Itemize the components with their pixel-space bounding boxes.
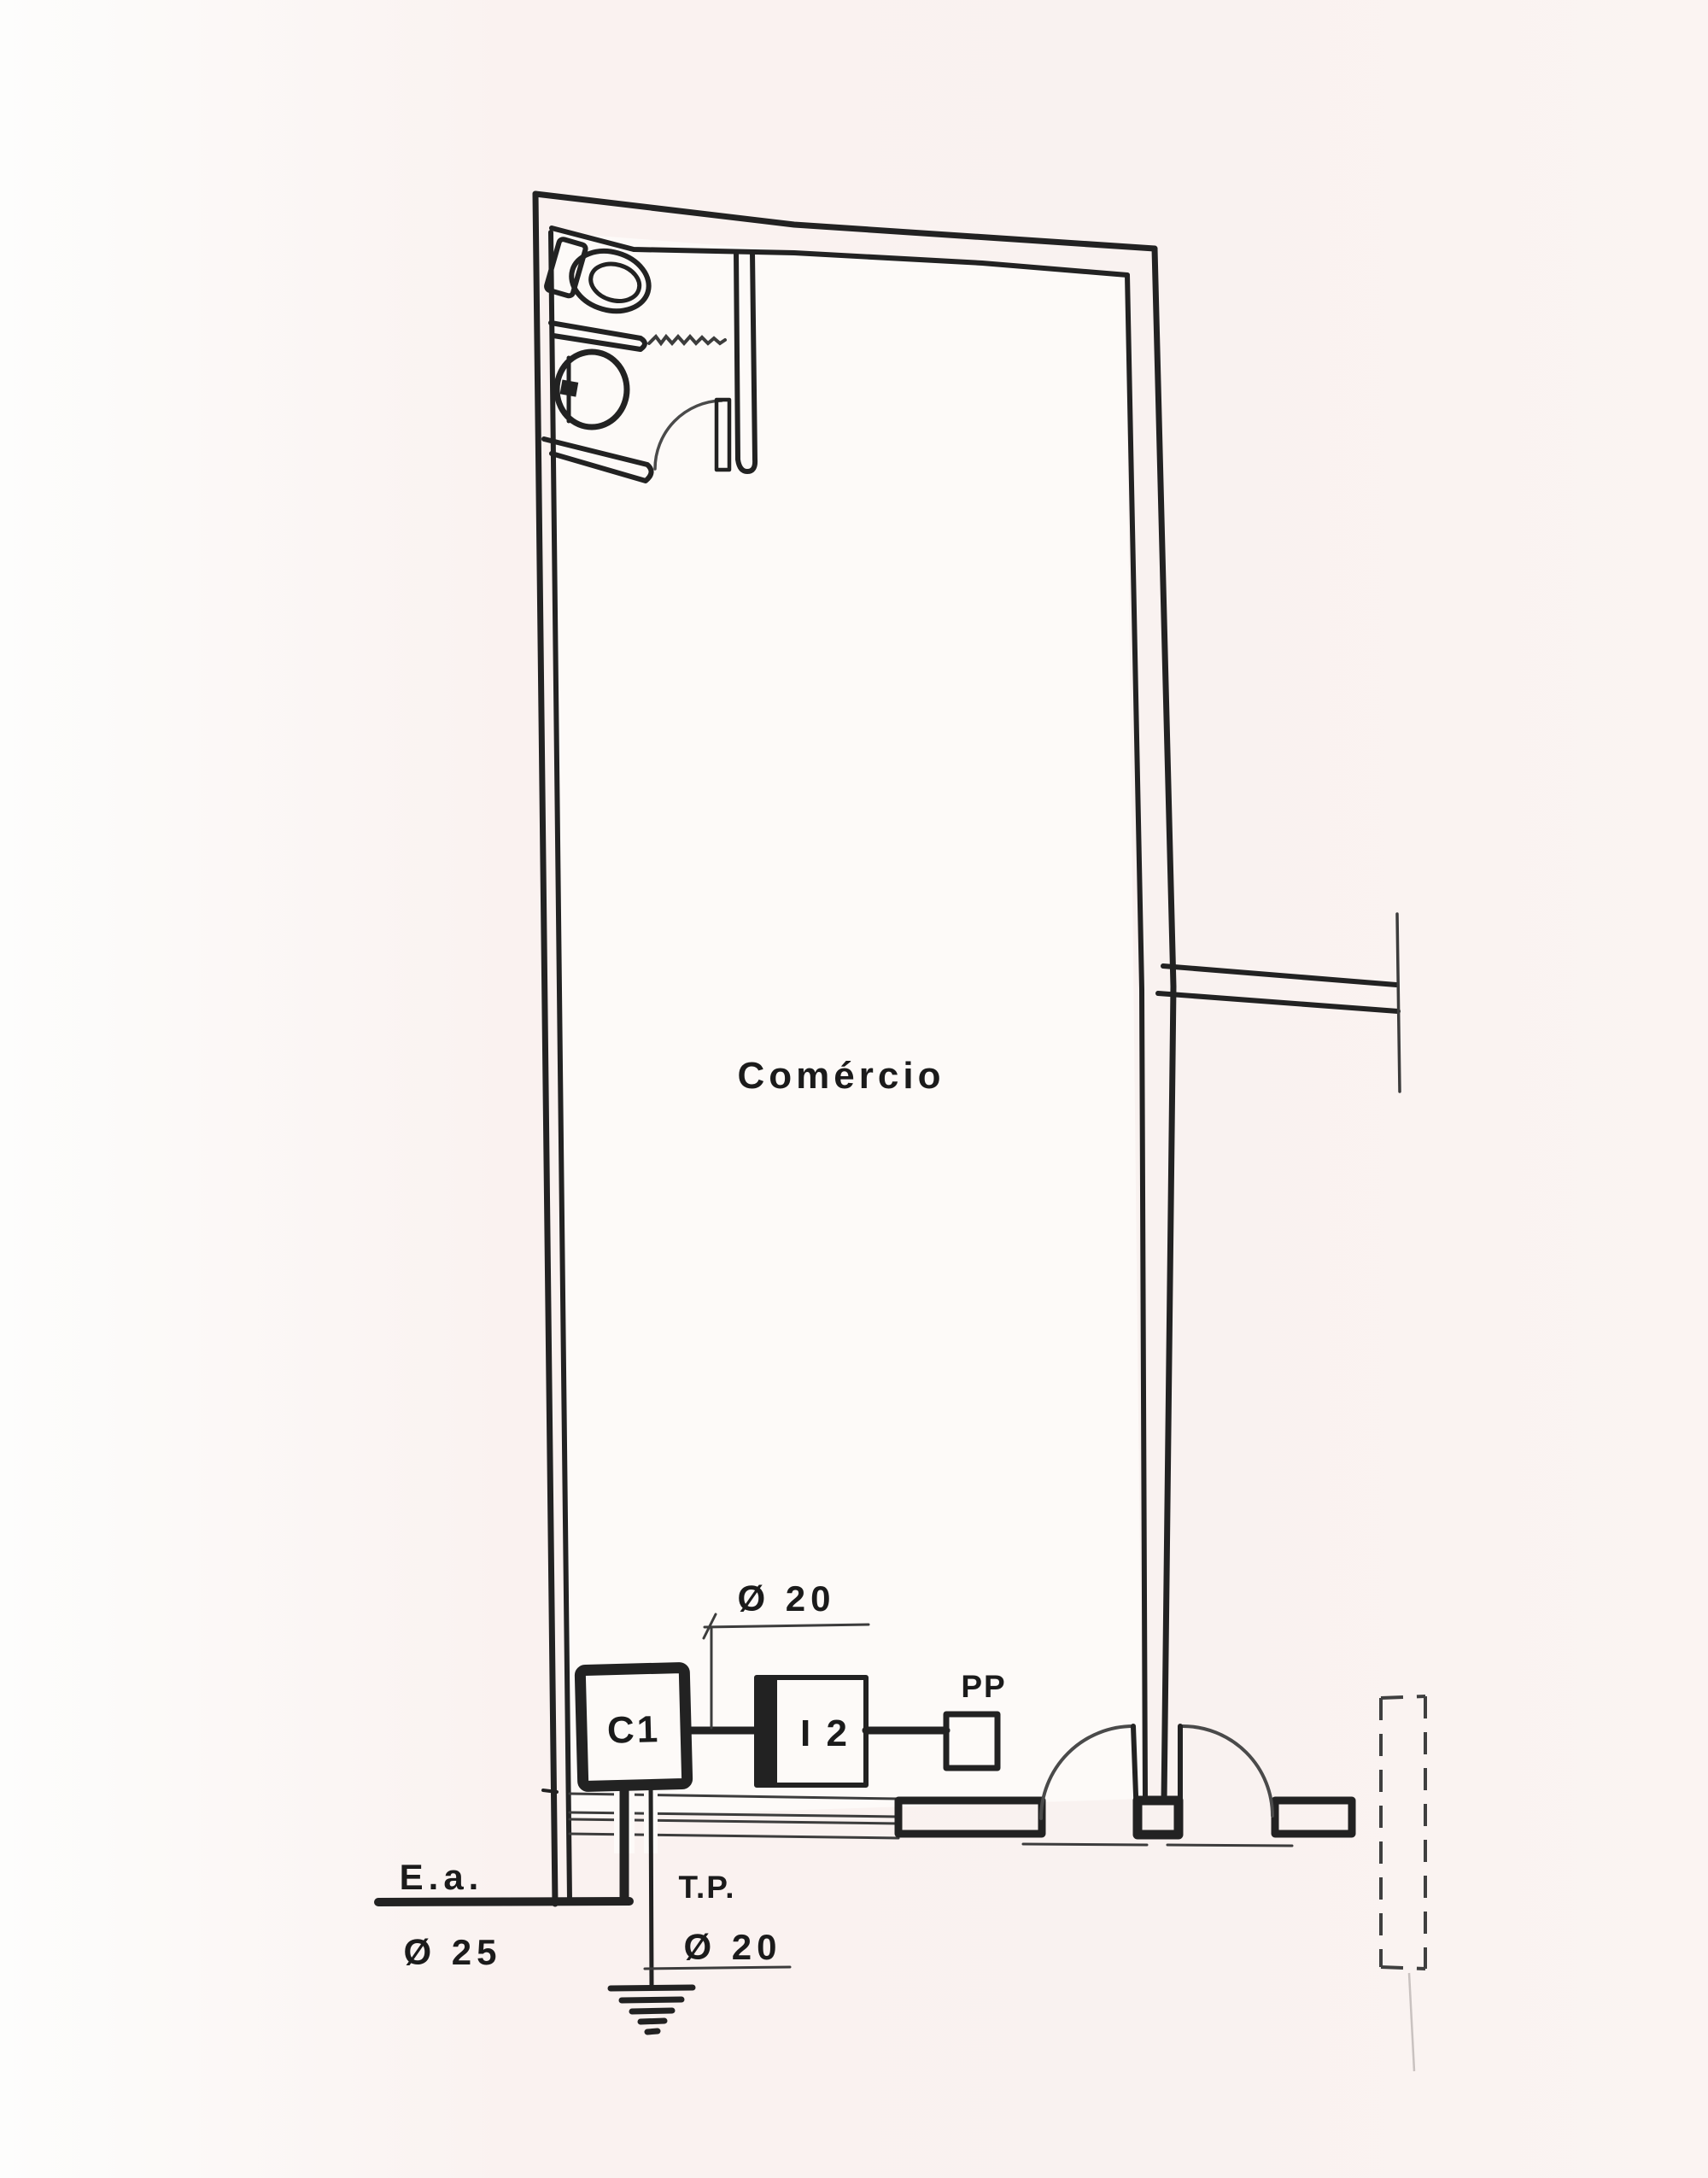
- room-interior-fill: [553, 232, 1143, 1818]
- entrance-door-right-arc: [1183, 1726, 1272, 1816]
- right-door-pier: [1275, 1800, 1352, 1834]
- entrance-door-left-leaf: [1133, 1726, 1137, 1818]
- dim-top-label: Ø 20: [737, 1578, 835, 1619]
- room-label: Comércio: [738, 1055, 945, 1097]
- dashed-boundary-bottom: [1381, 1967, 1425, 1969]
- ea-label: E.a.: [400, 1857, 484, 1897]
- side-wall-extension: [1158, 914, 1400, 1092]
- i2-box-left-band: [757, 1677, 777, 1785]
- tp-label: T.P.: [679, 1870, 736, 1905]
- ea-dim-label: Ø 25: [403, 1932, 501, 1972]
- ea-supply-line: [378, 1901, 629, 1902]
- dashed-boundary-top: [1381, 1696, 1425, 1698]
- threshold-right: [1167, 1845, 1292, 1846]
- tp-conduit: [651, 1785, 652, 1987]
- ground-symbol: [611, 1988, 693, 2032]
- tp-dim-label: Ø 20: [683, 1927, 781, 1967]
- extension-end-line: [1397, 914, 1400, 1092]
- extension-wall-top: [1163, 966, 1396, 985]
- floor-plan-canvas: C1 I 2 PP Comércio Ø 20 E.a. Ø 25 T.P. Ø…: [0, 0, 1708, 2178]
- center-door-pier: [1138, 1800, 1179, 1835]
- right-wall-outer: [1155, 249, 1173, 1802]
- faint-boundary-continuation: [1409, 1973, 1414, 2071]
- left-wall-notch: [543, 1790, 557, 1792]
- c1-label: C1: [606, 1708, 661, 1752]
- extension-wall-bottom: [1158, 993, 1398, 1011]
- tp-dim-line: [645, 1967, 790, 1969]
- threshold-left: [1023, 1844, 1147, 1845]
- pp-label: PP: [961, 1669, 1006, 1704]
- entrance-door-right: [1180, 1726, 1272, 1816]
- i2-label: I 2: [800, 1713, 850, 1754]
- sink-tap: [560, 380, 579, 397]
- dashed-boundary: [1381, 1696, 1425, 1969]
